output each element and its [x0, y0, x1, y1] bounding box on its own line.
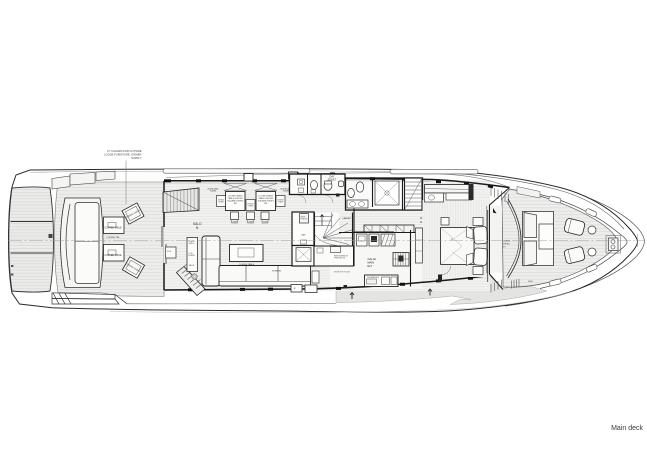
svg-text:FREEZER 2X: FREEZER 2X: [334, 258, 346, 260]
svg-text:COFFEE TABLE: COFFEE TABLE: [104, 254, 121, 257]
svg-text:COFFEE TABLE: COFFEE TABLE: [239, 263, 255, 266]
svg-text:LOOSE FURNITURE: OWNER: LOOSE FURNITURE: OWNER: [104, 153, 141, 157]
svg-text:SUN: SUN: [528, 281, 533, 283]
svg-text:BAR: BAR: [302, 234, 307, 237]
svg-text:CHAIR: CHAIR: [218, 201, 224, 204]
svg-text:CHAIR: CHAIR: [232, 220, 238, 223]
svg-text:TABLE: TABLE: [189, 264, 195, 267]
svg-text:CHAIR: CHAIR: [262, 220, 268, 223]
svg-text:SOFA 3S: SOFA 3S: [272, 270, 282, 273]
svg-text:900MM: 900MM: [283, 191, 290, 193]
svg-text:CRANE: CRANE: [503, 240, 511, 243]
svg-text:Main deck: Main deck: [611, 425, 643, 432]
svg-text:FRIDGE: FRIDGE: [301, 219, 309, 221]
svg-text:SPEED: SPEED: [503, 244, 511, 246]
svg-text:FYI CHAIRS FOR OUTSIDE: FYI CHAIRS FOR OUTSIDE: [107, 149, 141, 153]
svg-text:CABINET: CABINET: [342, 217, 352, 220]
svg-text:WORKTOP FLOOR: WORKTOP FLOOR: [334, 272, 351, 274]
svg-text:BOARD: BOARD: [189, 254, 196, 257]
svg-text:DISHWASHER: DISHWASHER: [367, 276, 380, 279]
svg-text:COFFEE TABLE: COFFEE TABLE: [104, 227, 121, 230]
svg-text:900MM: 900MM: [210, 191, 217, 193]
svg-text:CHAIR: CHAIR: [248, 220, 254, 223]
svg-text:NO: NO: [503, 247, 507, 249]
svg-text:GALLE: GALLE: [368, 257, 377, 261]
svg-text:MAIN: MAIN: [368, 261, 375, 265]
svg-text:COFFEE TBL: COFFEE TBL: [106, 237, 120, 239]
svg-text:ELT: ELT: [368, 264, 373, 268]
svg-text:SUPPLY: SUPPLY: [131, 156, 142, 160]
svg-text:CHAIR: CHAIR: [248, 205, 254, 208]
svg-text:CHAIR: CHAIR: [278, 201, 284, 204]
svg-text:SHELF: SHELF: [189, 243, 196, 245]
